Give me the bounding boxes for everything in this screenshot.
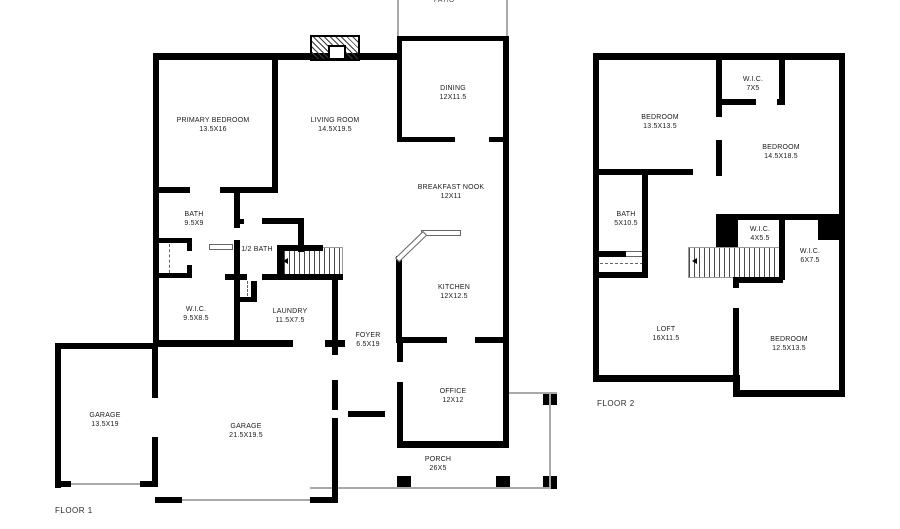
room-dims: 11.5X7.5 [273, 316, 308, 325]
closet-dashed-line [600, 263, 643, 264]
wall [716, 140, 722, 176]
wall [733, 390, 845, 397]
porch-line [549, 392, 551, 489]
wall [489, 137, 508, 142]
room-dims: 4X5.5 [750, 234, 770, 243]
room-dims: 13.5X16 [177, 125, 250, 134]
room-dims: 9.5X9 [184, 219, 203, 228]
wall [348, 411, 385, 417]
closet-dashed-line [247, 281, 248, 296]
floor2-caption: FLOOR 2 [597, 399, 635, 408]
wall [593, 53, 599, 382]
room-label-bedroom-3: BEDROOM 12.5X13.5 [770, 335, 808, 353]
room-name: PRIMARY BEDROOM [177, 116, 250, 125]
wall [598, 251, 626, 257]
room-label-wic: W.I.C. 9.5X8.5 [183, 305, 209, 323]
wall [262, 274, 343, 280]
wall [733, 277, 783, 283]
room-name: W.I.C. [800, 247, 820, 256]
room-name: LOFT [653, 325, 680, 334]
wall [153, 53, 402, 60]
wall [642, 175, 648, 278]
room-name: PORCH [425, 455, 451, 464]
room-label-bedroom-2: BEDROOM 14.5X18.5 [762, 143, 800, 161]
wall [779, 53, 785, 105]
room-dims: 12X12 [440, 396, 467, 405]
room-name: BATH [614, 210, 637, 219]
wall [716, 214, 738, 247]
room-label-kitchen: KITCHEN 12X12.5 [438, 283, 470, 301]
room-dims: 12X11 [418, 192, 484, 201]
room-dims: 16X11.5 [653, 334, 680, 343]
wall [397, 441, 508, 448]
room-label-wic-4x55: W.I.C. 4X5.5 [750, 225, 770, 243]
wall [272, 53, 278, 193]
room-label-porch: PORCH 26X5 [425, 455, 451, 473]
wall [397, 343, 403, 362]
room-name: W.I.C. [750, 225, 770, 234]
room-name: BEDROOM [641, 113, 679, 122]
porch-line [397, 0, 399, 36]
room-label-garage-left: GARAGE 13.5X19 [89, 411, 120, 429]
porch-line [508, 392, 557, 394]
wall [818, 220, 840, 240]
room-label-half-bath: 1/2 BATH [241, 245, 272, 254]
room-dims: 13.5X19 [89, 420, 120, 429]
wall [839, 53, 845, 397]
room-dims: 6X7.5 [800, 256, 820, 265]
wall [251, 281, 257, 302]
room-dims: 14.5X19.5 [311, 125, 360, 134]
wall [779, 214, 785, 280]
wall [234, 190, 240, 228]
room-dims: 5X10.5 [614, 219, 637, 228]
wall [397, 36, 402, 139]
room-name: 1/2 BATH [241, 245, 272, 254]
room-name: KITCHEN [438, 283, 470, 292]
porch-line [182, 499, 310, 501]
wall [722, 99, 756, 105]
room-dims: 12X11.5 [440, 93, 467, 102]
wall [234, 240, 240, 344]
room-label-primary-bedroom: PRIMARY BEDROOM 13.5X16 [177, 116, 250, 134]
stair-arrow-icon [692, 258, 697, 264]
wall [398, 337, 447, 343]
room-name: BEDROOM [770, 335, 808, 344]
room-label-wic-6x75: W.I.C. 6X7.5 [800, 247, 820, 265]
room-name: BREAKFAST NOOK [418, 183, 484, 192]
wall [397, 382, 403, 447]
wall [325, 340, 345, 347]
wall [152, 437, 158, 487]
room-dims: 21.5X19.5 [229, 431, 263, 440]
wall [397, 36, 508, 41]
closet-dashed-line [169, 244, 170, 273]
fireplace-firebox-icon [328, 45, 346, 60]
room-dims: 6.5X19 [355, 340, 380, 349]
room-name: FOYER [355, 331, 380, 340]
room-dims: 13.5X13.5 [641, 122, 679, 131]
room-name: OFFICE [440, 387, 467, 396]
room-label-foyer: FOYER 6.5X19 [355, 331, 380, 349]
floorplan-canvas: PATIO PRIMARY BEDROOM 13.5X16 LIVING ROO… [0, 0, 900, 529]
wall [140, 481, 158, 487]
room-name: W.I.C. [743, 75, 763, 84]
room-name: LAUNDRY [273, 307, 308, 316]
room-name: GARAGE [89, 411, 120, 420]
kitchen-counter [395, 231, 427, 262]
room-label-dining: DINING 12X11.5 [440, 84, 467, 102]
porch-line [506, 0, 508, 36]
room-label-living-room: LIVING ROOM 14.5X19.5 [311, 116, 360, 134]
wall [262, 218, 304, 224]
wall [593, 375, 740, 382]
room-dims: 26X5 [425, 464, 451, 473]
wall [155, 497, 182, 503]
room-name: GARAGE [229, 422, 263, 431]
wall [332, 380, 338, 410]
patio-label-partial: PATIO [434, 0, 455, 4]
wall [332, 418, 338, 498]
wall [396, 256, 402, 343]
room-label-office: OFFICE 12X12 [440, 387, 467, 405]
room-label-breakfast-nook: BREAKFAST NOOK 12X11 [418, 183, 484, 201]
wall [593, 53, 845, 60]
wall [593, 169, 693, 175]
porch-line [310, 487, 550, 489]
wall [733, 308, 739, 382]
room-label-garage-main: GARAGE 21.5X19.5 [229, 422, 263, 440]
wall [153, 340, 293, 347]
wall [152, 343, 158, 398]
room-name: BATH [184, 210, 203, 219]
wall [503, 36, 509, 448]
room-dims: 12.5X13.5 [770, 344, 808, 353]
stair-arrow-icon [283, 258, 288, 264]
wall [593, 272, 648, 278]
wall [220, 187, 278, 193]
room-dims: 9.5X8.5 [183, 314, 209, 323]
porch-line [71, 483, 141, 485]
room-dims: 14.5X18.5 [762, 152, 800, 161]
wall [733, 277, 739, 288]
room-name: DINING [440, 84, 467, 93]
room-name: LIVING ROOM [311, 116, 360, 125]
wall [55, 343, 61, 488]
room-label-bath-2: BATH 5X10.5 [614, 210, 637, 228]
counter [209, 244, 233, 250]
room-name: BEDROOM [762, 143, 800, 152]
room-label-bath: BATH 9.5X9 [184, 210, 203, 228]
wall [777, 99, 785, 105]
room-label-bedroom-1: BEDROOM 13.5X13.5 [641, 113, 679, 131]
room-label-wic-7x5: W.I.C. 7X5 [743, 75, 763, 93]
room-dims: 7X5 [743, 84, 763, 93]
wall [716, 53, 722, 117]
floor1-caption: FLOOR 1 [55, 506, 93, 515]
room-name: W.I.C. [183, 305, 209, 314]
wall [397, 137, 455, 142]
wall [55, 343, 158, 349]
wall [153, 53, 159, 347]
staircase [688, 247, 782, 278]
room-dims: 12X12.5 [438, 292, 470, 301]
room-label-loft: LOFT 16X11.5 [653, 325, 680, 343]
room-label-laundry: LAUNDRY 11.5X7.5 [273, 307, 308, 325]
